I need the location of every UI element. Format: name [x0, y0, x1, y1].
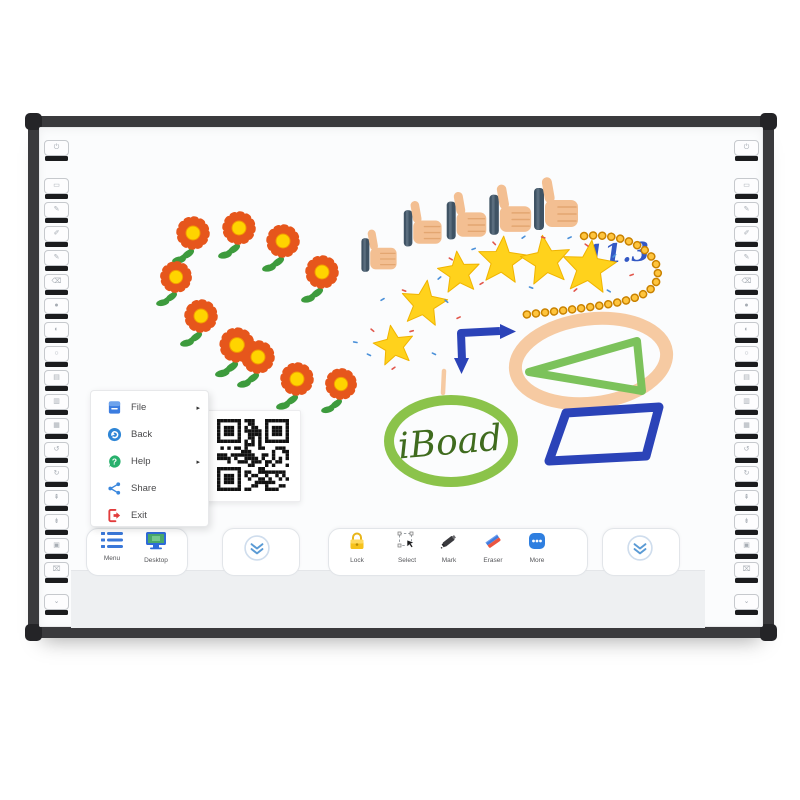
hotkey-label-strip	[45, 434, 68, 439]
tool-label: Eraser	[470, 557, 516, 564]
confetti-speck	[521, 235, 526, 239]
hotkey-label-strip	[735, 194, 758, 199]
hotkey-button[interactable]: ▦	[44, 418, 69, 434]
confetti-speck	[573, 288, 578, 292]
confetti-speck	[492, 241, 497, 246]
confetti-speck	[629, 273, 634, 276]
menu-item-help[interactable]: ? Help ▸	[91, 448, 208, 475]
hotkey-button[interactable]: ⌧	[734, 562, 759, 578]
hotkey-label-strip	[45, 458, 68, 463]
hotkey-button[interactable]: ▦	[734, 418, 759, 434]
flower-drawing	[171, 220, 206, 265]
mark-icon	[438, 531, 460, 551]
menu-item-exit[interactable]: Exit	[91, 502, 208, 529]
menu-item-back[interactable]: Back	[91, 421, 208, 448]
hotkey-label-strip	[45, 290, 68, 295]
hotkey-button[interactable]: ▭	[44, 178, 69, 194]
submenu-arrow-icon: ▸	[196, 404, 200, 412]
hotkey-label-strip	[45, 482, 68, 487]
tool-label: Mark	[426, 557, 472, 564]
hotkey-label-strip	[735, 266, 758, 271]
hotkey-button[interactable]: ●	[734, 298, 759, 314]
hotkey-button[interactable]: ↺	[734, 442, 759, 458]
tan-stroke-drawing	[443, 371, 444, 393]
hotkey-label-strip	[735, 314, 758, 319]
hotkey-label-strip	[45, 338, 68, 343]
hotkey-button[interactable]: ⇞	[734, 490, 759, 506]
confetti-speck	[479, 282, 484, 286]
hotkey-column-right: ⏻▭✎✐✎⌫●◐○▤▥▦↺↻⇞⇟▣⌧⌄	[733, 127, 759, 627]
hotkey-button[interactable]: ✎	[44, 202, 69, 218]
hotkey-label-strip	[735, 554, 758, 559]
hotkey-button[interactable]: ↺	[44, 442, 69, 458]
hotkey-label-strip	[45, 242, 68, 247]
confetti-speck	[437, 276, 442, 280]
menu-item-label: Exit	[131, 510, 200, 521]
triangle-drawing	[529, 341, 642, 391]
select-button[interactable]: Select	[384, 531, 430, 564]
lock-button[interactable]: Lock	[334, 531, 380, 564]
hotkey-button[interactable]: ↻	[44, 466, 69, 482]
flower-drawing	[275, 366, 310, 411]
hotkey-label-strip	[45, 410, 68, 415]
back-icon	[107, 427, 122, 442]
handwritten-brand-text: iBoad	[396, 418, 503, 468]
star-drawing	[373, 325, 412, 365]
thumbs-up-drawing	[534, 176, 578, 230]
thumbs-up-drawing	[489, 184, 531, 235]
hotkey-label-strip	[45, 386, 68, 391]
confetti-speck	[380, 298, 385, 302]
flower-drawing	[156, 264, 189, 307]
hotkey-label-strip	[735, 458, 758, 463]
confetti-speck	[353, 341, 358, 343]
toolbar-baseboard	[71, 570, 705, 628]
hotkey-button[interactable]: ⌄	[44, 594, 69, 610]
context-menu: File ▸ Back ? Help ▸	[90, 390, 209, 527]
hotkey-label-strip	[735, 530, 758, 535]
hotkey-label-strip	[735, 156, 758, 161]
eraser-button[interactable]: Eraser	[470, 531, 516, 564]
eraser-icon	[482, 531, 504, 551]
hotkey-button[interactable]: ⇟	[734, 514, 759, 530]
hotkey-label-strip	[45, 578, 68, 583]
hotkey-button[interactable]: ○	[734, 346, 759, 362]
hotkey-label-strip	[735, 610, 758, 615]
hotkey-label-strip	[45, 530, 68, 535]
hotkey-button[interactable]: ⇟	[44, 514, 69, 530]
tool-label: Lock	[334, 557, 380, 564]
hotkey-label-strip	[45, 218, 68, 223]
confetti-speck	[409, 330, 414, 333]
thumbs-up-drawing	[447, 191, 487, 239]
confetti-speck	[431, 352, 436, 356]
confetti-speck	[471, 247, 476, 250]
hotkey-button[interactable]: ✎	[44, 250, 69, 266]
hotkey-button[interactable]: ●	[44, 298, 69, 314]
flower-drawing	[179, 303, 214, 348]
hotkey-label-strip	[735, 290, 758, 295]
hotkey-label-strip	[735, 434, 758, 439]
star-drawing	[520, 235, 569, 284]
whiteboard-surface: ⏻▭✎✐✎⌫●◐○▤▥▦↺↻⇞⇟▣⌧⌄ ⏻▭✎✐✎⌫●◐○▤▥▦↺↻⇞⇟▣⌧⌄	[39, 127, 763, 627]
hotkey-button[interactable]: ⏻	[734, 140, 759, 156]
mark-button[interactable]: Mark	[426, 531, 472, 564]
hotkey-button[interactable]: ▣	[44, 538, 69, 554]
more-icon	[526, 531, 548, 551]
hotkey-button[interactable]: ✎	[734, 202, 759, 218]
tool-label: Menu	[89, 555, 135, 562]
whiteboard-frame: ⏻▭✎✐✎⌫●◐○▤▥▦↺↻⇞⇟▣⌧⌄ ⏻▭✎✐✎⌫●◐○▤▥▦↺↻⇞⇟▣⌧⌄	[28, 116, 774, 638]
more-button[interactable]: More	[514, 531, 560, 564]
flower-drawing	[321, 371, 354, 414]
confetti-speck	[606, 289, 611, 293]
hotkey-label-strip	[45, 266, 68, 271]
menu-item-share[interactable]: Share	[91, 475, 208, 502]
double-chevron-down-icon	[244, 548, 270, 565]
hotkey-label-strip	[735, 338, 758, 343]
menu-item-label: Share	[131, 483, 200, 494]
menu-item-label: File	[131, 402, 196, 413]
hotkey-button[interactable]: ✎	[734, 250, 759, 266]
menu-item-file[interactable]: File ▸	[91, 394, 208, 421]
hotkey-button[interactable]: ○	[44, 346, 69, 362]
hotkey-label-strip	[45, 194, 68, 199]
menu-list-icon	[101, 531, 123, 551]
hotkey-button[interactable]: ▥	[44, 394, 69, 410]
tool-label: Select	[384, 557, 430, 564]
desktop-icon	[145, 531, 167, 551]
parallelogram-drawing	[549, 407, 659, 461]
svg-text:?: ?	[112, 456, 117, 466]
hotkey-label-strip	[735, 386, 758, 391]
hotkey-label-strip	[45, 506, 68, 511]
star-drawing	[402, 280, 447, 325]
hotkey-button[interactable]: ⌧	[44, 562, 69, 578]
hotkey-label-strip	[45, 610, 68, 615]
qr-code-card	[205, 410, 301, 502]
confetti-speck	[567, 236, 572, 240]
hotkey-label-strip	[735, 578, 758, 583]
confetti-speck	[366, 353, 371, 357]
product-photo-stage: ⏻▭✎✐✎⌫●◐○▤▥▦↺↻⇞⇟▣⌧⌄ ⏻▭✎✐✎⌫●◐○▤▥▦↺↻⇞⇟▣⌧⌄	[0, 0, 800, 800]
hotkey-button[interactable]: ▭	[734, 178, 759, 194]
select-icon	[396, 531, 418, 551]
peach-ellipse-drawing	[510, 310, 671, 412]
hotkey-label-strip	[45, 156, 68, 161]
hotkey-button[interactable]: ▥	[734, 394, 759, 410]
flower-drawing	[261, 228, 296, 273]
hotkey-button[interactable]: ✐	[44, 226, 69, 242]
hotkey-button[interactable]: ⇞	[44, 490, 69, 506]
hotkey-label-strip	[45, 314, 68, 319]
hotkey-button[interactable]: ▣	[734, 538, 759, 554]
desktop-button[interactable]: Desktop	[133, 531, 179, 564]
hotkey-column-left: ⏻▭✎✐✎⌫●◐○▤▥▦↺↻⇞⇟▣⌧⌄	[43, 127, 69, 627]
hotkey-button[interactable]: ⏻	[44, 140, 69, 156]
help-icon: ?	[107, 454, 122, 469]
menu-button[interactable]: Menu	[89, 531, 135, 562]
hotkey-label-strip	[45, 362, 68, 367]
hotkey-label-strip	[735, 506, 758, 511]
confetti-speck	[448, 257, 453, 261]
star-drawing	[438, 251, 480, 292]
hotkey-button[interactable]: ⌫	[734, 274, 759, 290]
frame-corner-cap	[760, 624, 777, 641]
menu-item-label: Back	[131, 429, 200, 440]
lock-icon	[346, 531, 368, 551]
hotkey-label-strip	[45, 554, 68, 559]
menu-item-label: Help	[131, 456, 196, 467]
hotkey-button[interactable]: ◐	[734, 322, 759, 338]
thumbs-up-drawing	[404, 200, 442, 246]
confetti-speck	[456, 316, 461, 320]
hotkey-button[interactable]: ▤	[44, 370, 69, 386]
hotkey-button[interactable]: ⌫	[44, 274, 69, 290]
hotkey-label-strip	[735, 410, 758, 415]
tool-label: Desktop	[133, 557, 179, 564]
collapse-toolbar-left-button[interactable]	[244, 535, 270, 561]
hotkey-label-strip	[735, 362, 758, 367]
hotkey-button[interactable]: ▤	[734, 370, 759, 386]
flower-drawing	[217, 215, 252, 260]
star-drawing	[479, 236, 527, 282]
hotkey-button[interactable]: ◐	[44, 322, 69, 338]
exit-icon	[107, 508, 122, 523]
tool-label: More	[514, 557, 560, 564]
confetti-speck	[370, 328, 375, 332]
confetti-speck	[401, 289, 406, 292]
flower-drawing	[300, 259, 335, 304]
hotkey-label-strip	[735, 482, 758, 487]
double-chevron-down-icon	[627, 548, 653, 565]
thumbs-up-drawing	[361, 229, 396, 272]
hotkey-button[interactable]: ↻	[734, 466, 759, 482]
hotkey-button[interactable]: ⌄	[734, 594, 759, 610]
hotkey-label-strip	[735, 242, 758, 247]
confetti-speck	[528, 286, 533, 289]
arrow-drawing	[454, 324, 516, 374]
hotkey-label-strip	[735, 218, 758, 223]
share-icon	[107, 481, 122, 496]
hotkey-button[interactable]: ✐	[734, 226, 759, 242]
collapse-toolbar-right-button[interactable]	[627, 535, 653, 561]
file-icon	[107, 400, 122, 415]
qr-code	[217, 419, 289, 491]
submenu-arrow-icon: ▸	[196, 458, 200, 466]
confetti-speck	[391, 366, 396, 370]
